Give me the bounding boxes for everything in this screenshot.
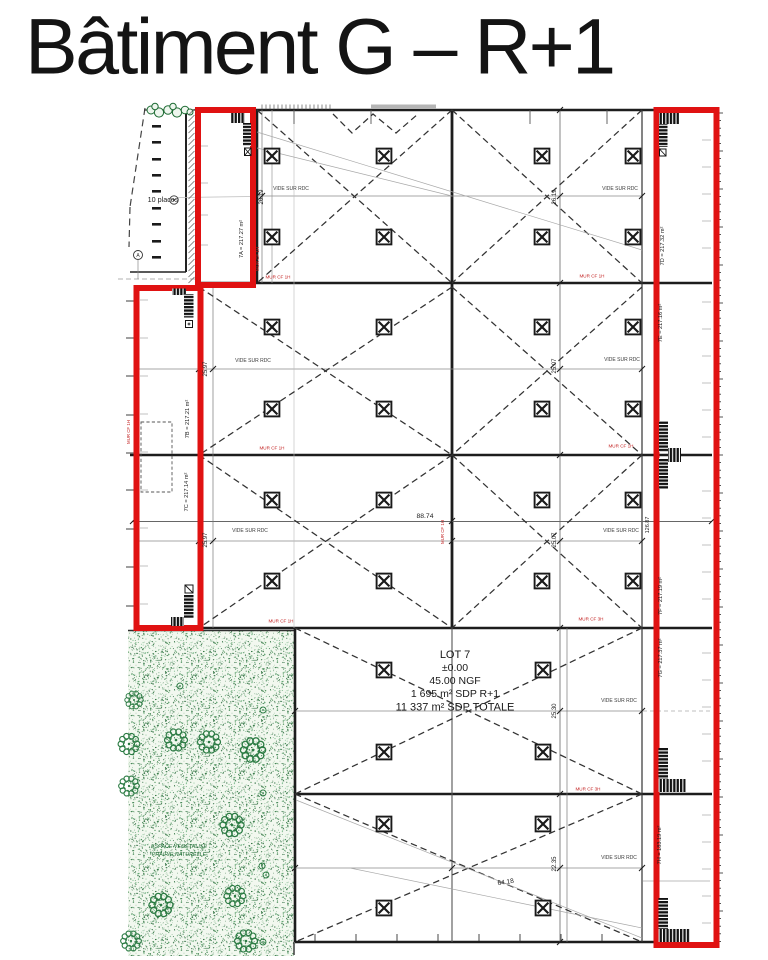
svg-text:25.07: 25.07 [552, 358, 558, 374]
svg-text:LOT 7: LOT 7 [440, 649, 470, 661]
svg-text:7G = 217.37 m²: 7G = 217.37 m² [658, 638, 664, 677]
svg-text:MUR CF 1H: MUR CF 1H [265, 275, 290, 280]
svg-text:126.87: 126.87 [645, 517, 651, 534]
svg-text:7D = 217.32 m²: 7D = 217.32 m² [660, 227, 666, 266]
svg-text:VIDE SUR RDC: VIDE SUR RDC [235, 358, 271, 364]
svg-text:MUR CF 1H: MUR CF 1H [268, 619, 293, 624]
svg-text:11 337 m² SDP TOTALE: 11 337 m² SDP TOTALE [396, 702, 515, 714]
svg-text:7F = 217.19 m²: 7F = 217.19 m² [658, 577, 664, 615]
svg-text:7E = 217.16 m²: 7E = 217.16 m² [658, 304, 664, 343]
svg-text:MUR CF 3H: MUR CF 3H [578, 617, 603, 622]
svg-text:26.19: 26.19 [552, 189, 558, 205]
svg-text:1 695 m² SDP R+1: 1 695 m² SDP R+1 [411, 688, 499, 700]
svg-text:45.00 NGF: 45.00 NGF [429, 675, 480, 687]
svg-text:7B = 217.21 m²: 7B = 217.21 m² [185, 400, 191, 439]
svg-text:VIDE SUR RDC: VIDE SUR RDC [603, 528, 639, 534]
svg-text:ESPACE VÉGÉTALISÉ: ESPACE VÉGÉTALISÉ [151, 843, 208, 850]
svg-text:26.19: 26.19 [259, 189, 265, 205]
svg-text:25.97: 25.97 [203, 532, 209, 548]
svg-text:MUR CF 1H: MUR CF 1H [259, 446, 284, 451]
svg-text:25.30: 25.30 [552, 703, 558, 719]
svg-text:MUR CF 1H: MUR CF 1H [126, 420, 131, 444]
svg-text:MUR CF 1H: MUR CF 1H [608, 444, 633, 449]
svg-text:PRAIRIE NATURELLE: PRAIRIE NATURELLE [152, 852, 207, 858]
svg-text:25.07: 25.07 [552, 532, 558, 548]
svg-text:25.97: 25.97 [203, 361, 209, 377]
svg-text:VIDE SUR RDC: VIDE SUR RDC [601, 855, 637, 861]
svg-text:22.35: 22.35 [552, 856, 558, 872]
svg-text:MUR CF 1H: MUR CF 1H [255, 247, 260, 271]
svg-text:MUR CF 3H: MUR CF 3H [575, 787, 600, 792]
svg-text:Bâtiment G – R+1: Bâtiment G – R+1 [25, 2, 614, 91]
svg-text:MUR CF 1H: MUR CF 1H [440, 520, 445, 544]
svg-text:±0.00: ±0.00 [442, 662, 468, 674]
svg-text:7C = 217.14 m²: 7C = 217.14 m² [184, 473, 190, 512]
svg-text:VIDE SUR RDC: VIDE SUR RDC [602, 186, 638, 192]
svg-text:88.74: 88.74 [416, 513, 433, 520]
svg-text:VIDE SUR RDC: VIDE SUR RDC [601, 698, 637, 704]
svg-text:A: A [136, 253, 140, 259]
svg-text:VIDE SUR RDC: VIDE SUR RDC [232, 528, 268, 534]
svg-text:7A = 217.27 m²: 7A = 217.27 m² [239, 220, 245, 258]
svg-text:7H = 183.19 m²: 7H = 183.19 m² [657, 826, 663, 865]
svg-text:VIDE SUR RDC: VIDE SUR RDC [604, 357, 640, 363]
svg-text:VIDE SUR RDC: VIDE SUR RDC [273, 186, 309, 192]
svg-text:MUR CF 1H: MUR CF 1H [579, 274, 604, 279]
